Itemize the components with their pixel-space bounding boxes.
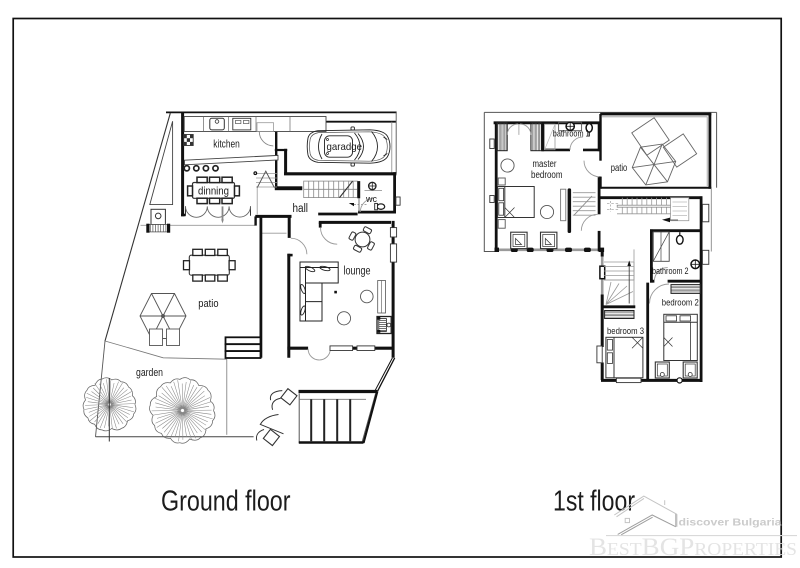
svg-text:BestBGProperties: BestBGProperties — [589, 534, 797, 561]
svg-text:lounge: lounge — [344, 266, 371, 278]
svg-text:patio: patio — [198, 298, 218, 310]
svg-text:garadge: garadge — [327, 141, 363, 153]
svg-text:bathroom 2: bathroom 2 — [652, 266, 689, 276]
svg-text:bedroom: bedroom — [531, 170, 563, 181]
svg-text:bathroom 1: bathroom 1 — [553, 129, 590, 139]
svg-text:discover Bulgaria: discover Bulgaria — [679, 517, 782, 529]
svg-text:wc: wc — [365, 194, 377, 205]
svg-text:Ground floor: Ground floor — [161, 486, 291, 518]
svg-text:dinning: dinning — [198, 186, 229, 198]
svg-text:hall: hall — [293, 203, 309, 215]
svg-text:garden: garden — [136, 367, 163, 379]
svg-text:master: master — [533, 159, 558, 170]
svg-text:bedroom 3: bedroom 3 — [607, 326, 644, 337]
svg-text:patio: patio — [611, 162, 628, 174]
svg-text:kitchen: kitchen — [213, 138, 240, 150]
svg-text:bedroom 2: bedroom 2 — [662, 297, 699, 308]
